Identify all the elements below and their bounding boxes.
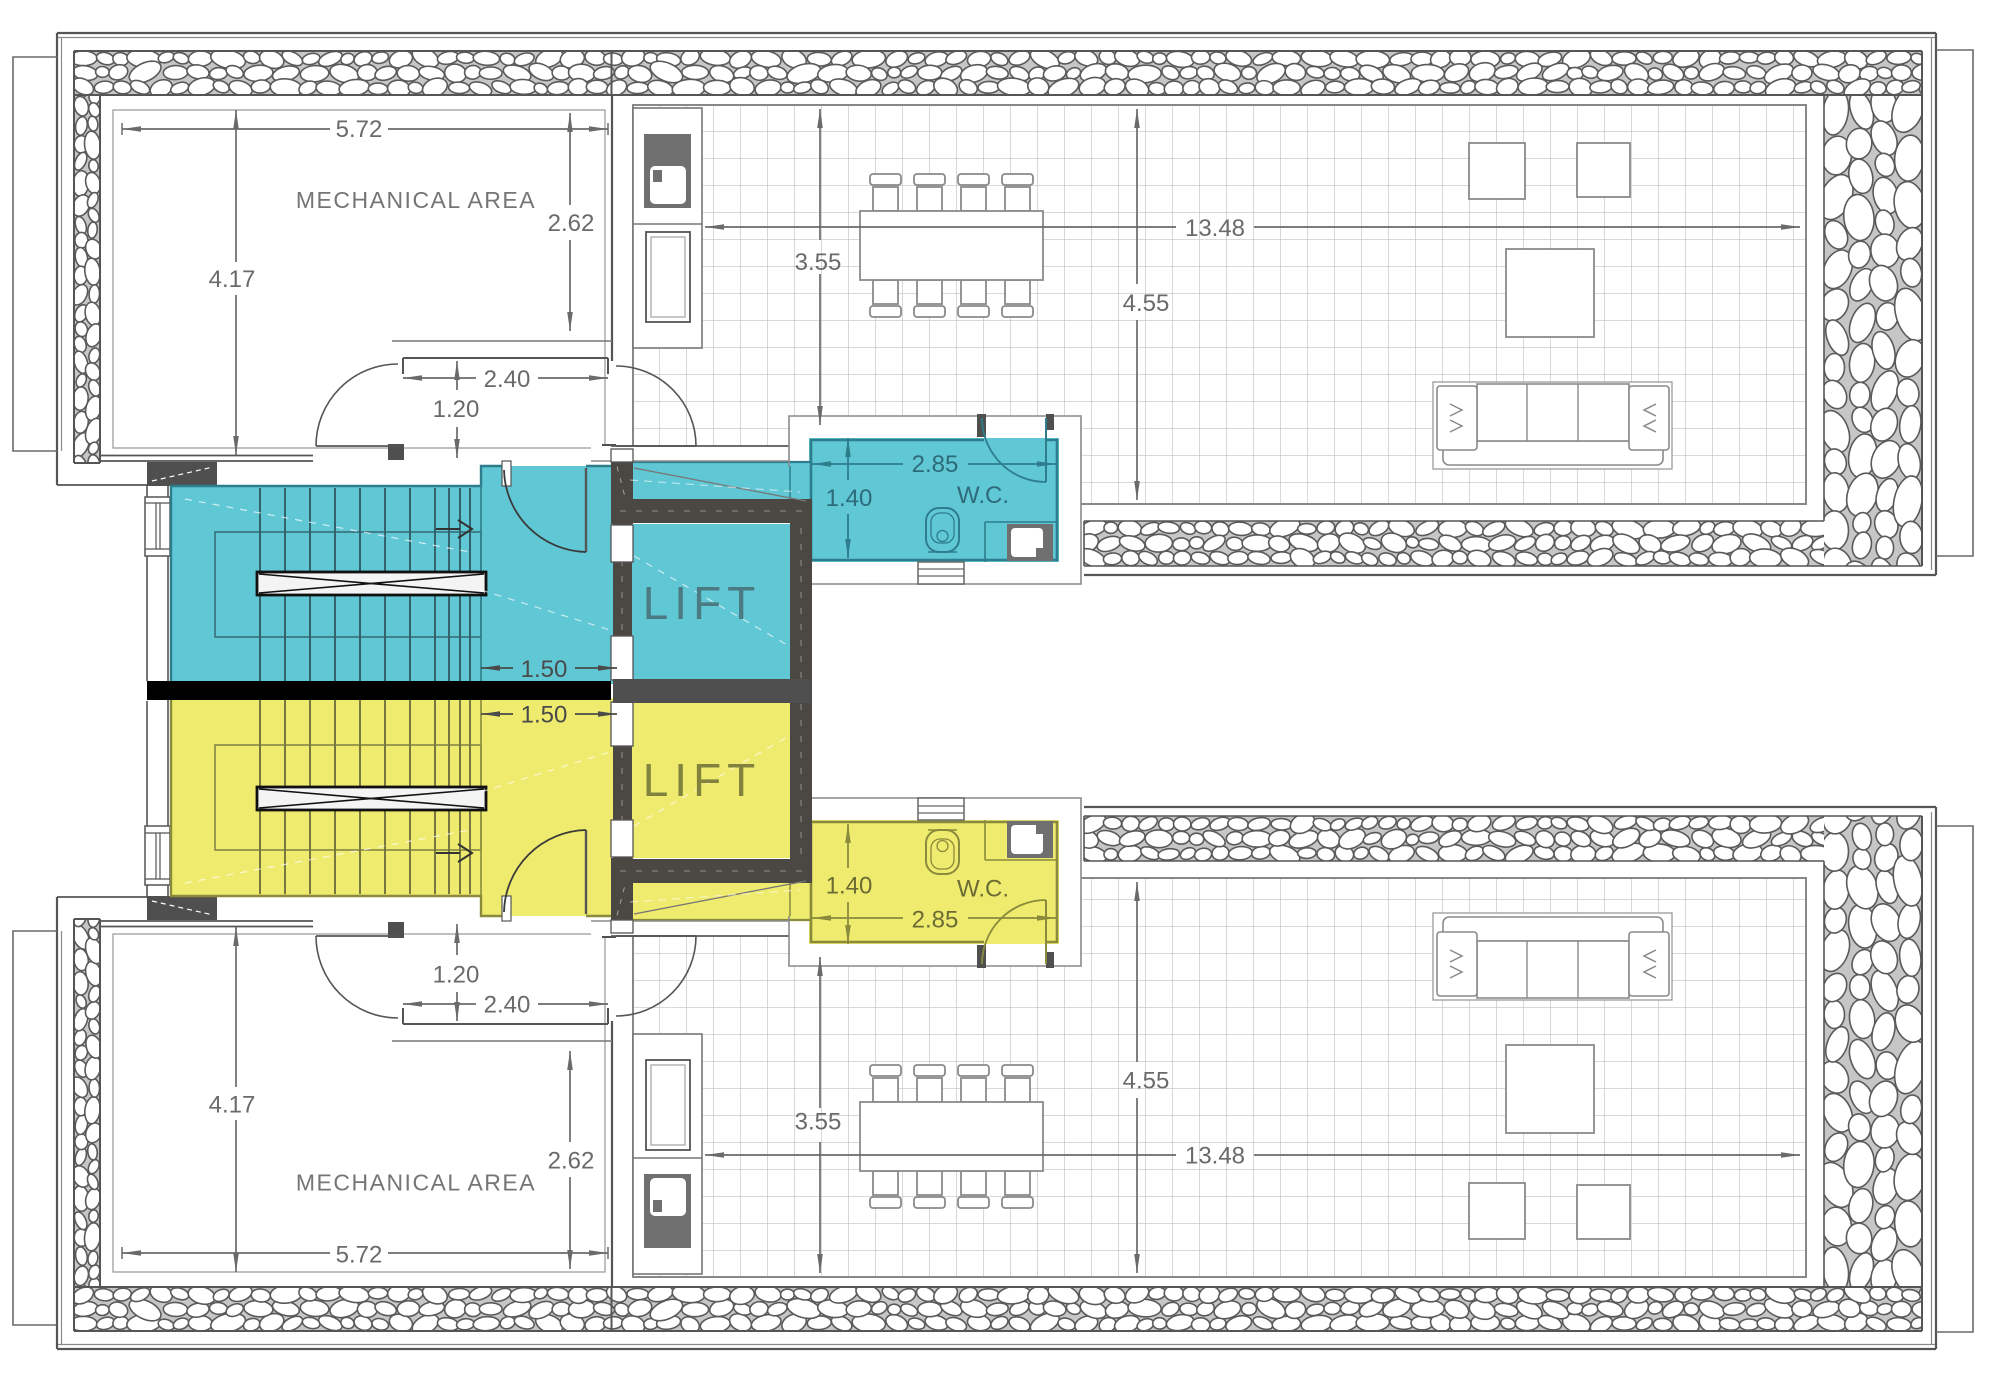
svg-text:2.85: 2.85 [912, 451, 959, 478]
svg-text:4.17: 4.17 [209, 1091, 256, 1118]
svg-text:3.55: 3.55 [795, 249, 842, 276]
svg-text:5.72: 5.72 [336, 116, 383, 143]
svg-text:2.62: 2.62 [548, 1147, 595, 1174]
svg-text:MECHANICAL AREA: MECHANICAL AREA [296, 187, 536, 213]
svg-text:13.48: 13.48 [1185, 215, 1245, 242]
svg-text:1.20: 1.20 [433, 396, 480, 423]
svg-text:LIFT: LIFT [643, 754, 762, 806]
svg-text:1.40: 1.40 [826, 872, 873, 899]
svg-text:1.20: 1.20 [433, 961, 480, 988]
svg-text:2.40: 2.40 [484, 366, 531, 393]
svg-text:LIFT: LIFT [643, 577, 762, 629]
svg-text:5.72: 5.72 [336, 1241, 383, 1268]
svg-text:3.55: 3.55 [795, 1108, 842, 1135]
svg-text:1.50: 1.50 [521, 701, 568, 728]
svg-text:1.40: 1.40 [826, 485, 873, 512]
svg-text:4.17: 4.17 [209, 266, 256, 293]
svg-text:W.C.: W.C. [957, 482, 1009, 509]
svg-text:2.62: 2.62 [548, 210, 595, 237]
svg-text:2.40: 2.40 [484, 991, 531, 1018]
svg-text:4.55: 4.55 [1123, 1067, 1170, 1094]
svg-text:1.50: 1.50 [521, 656, 568, 683]
svg-text:MECHANICAL AREA: MECHANICAL AREA [296, 1170, 536, 1196]
svg-text:4.55: 4.55 [1123, 290, 1170, 317]
svg-text:13.48: 13.48 [1185, 1142, 1245, 1169]
svg-text:W.C.: W.C. [957, 875, 1009, 902]
svg-text:2.85: 2.85 [912, 906, 959, 933]
